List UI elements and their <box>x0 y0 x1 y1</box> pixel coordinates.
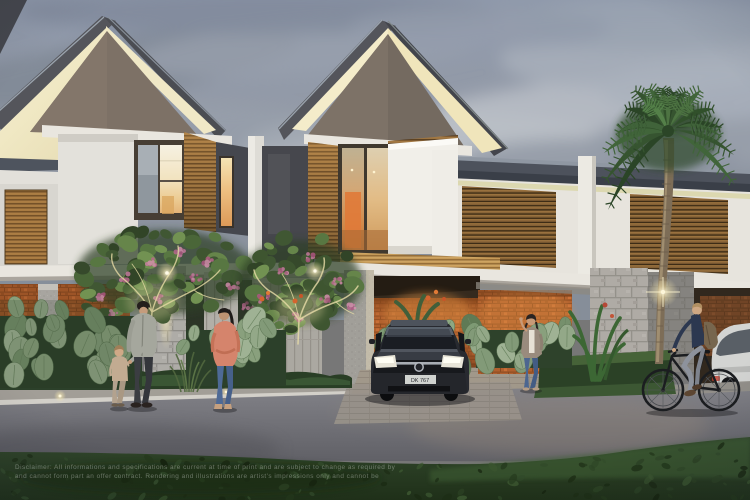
svg-text:Disclaimer: All informations a: Disclaimer: All informations and specifi… <box>15 464 396 471</box>
svg-text:and cannot form part an offer: and cannot form part an offer contract. … <box>15 473 379 480</box>
